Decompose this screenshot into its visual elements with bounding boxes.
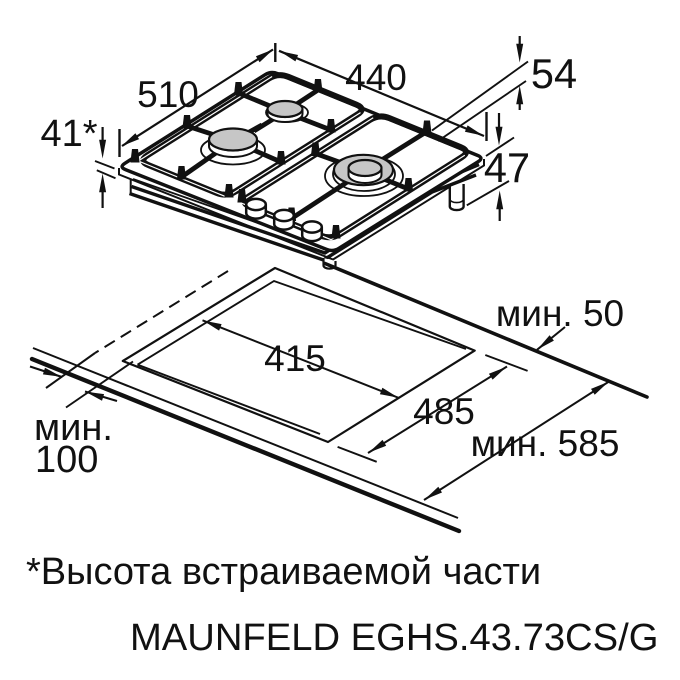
svg-text:*Высота встраиваемой части: *Высота встраиваемой части [26,551,541,593]
svg-text:41*: 41* [40,113,97,155]
svg-text:54: 54 [531,50,577,97]
svg-text:47: 47 [484,144,530,191]
svg-text:415: 415 [264,338,326,379]
svg-text:100: 100 [35,439,98,481]
svg-text:MAUNFELD EGHS.43.73CS/G: MAUNFELD EGHS.43.73CS/G [130,616,658,659]
svg-text:мин. 50: мин. 50 [496,293,624,334]
svg-text:485: 485 [413,391,475,432]
svg-text:510: 510 [137,74,199,115]
svg-text:мин. 585: мин. 585 [471,423,620,464]
svg-text:440: 440 [345,57,407,98]
